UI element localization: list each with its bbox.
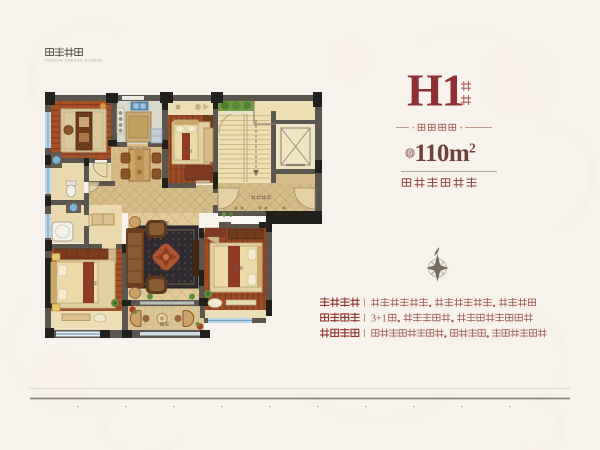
svg-text:3+1: 3+1: [371, 314, 387, 325]
svg-text:JIANZHU FANGAN SCHEME: JIANZHU FANGAN SCHEME: [45, 59, 104, 63]
svg-text:H1: H1: [407, 65, 463, 116]
svg-text:110m2: 110m2: [415, 140, 477, 167]
